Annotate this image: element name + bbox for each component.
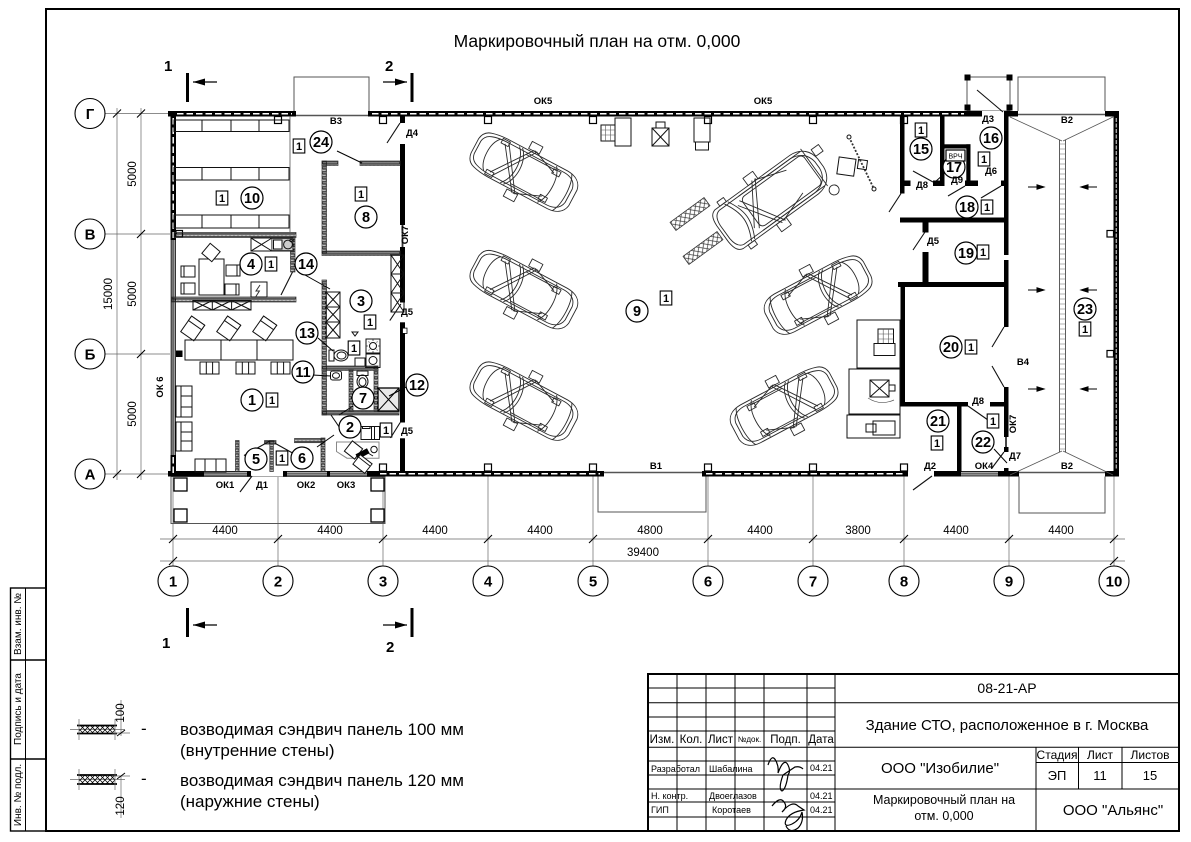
svg-text:Лист: Лист	[1087, 748, 1114, 762]
svg-text:Подпись и дата: Подпись и дата	[13, 673, 24, 745]
svg-text:5000: 5000	[127, 281, 139, 307]
svg-text:1: 1	[162, 635, 170, 652]
svg-text:Д5: Д5	[401, 307, 414, 318]
svg-text:Д4: Д4	[406, 128, 419, 139]
svg-text:ОК5: ОК5	[534, 96, 553, 107]
svg-text:ОК 6: ОК 6	[155, 376, 166, 397]
svg-text:В1: В1	[650, 461, 663, 472]
svg-text:15: 15	[913, 142, 929, 158]
svg-text:В: В	[85, 227, 96, 244]
svg-text:ОК7: ОК7	[1008, 415, 1019, 433]
svg-text:2: 2	[274, 574, 282, 591]
svg-text:3800: 3800	[845, 525, 871, 537]
svg-text:120: 120	[115, 796, 127, 815]
svg-text:11: 11	[295, 365, 310, 381]
svg-text:1: 1	[169, 574, 177, 591]
svg-text:Д9: Д9	[951, 175, 963, 186]
svg-text:ООО "Альянс": ООО "Альянс"	[1063, 802, 1163, 819]
svg-text:Двоеглазов: Двоеглазов	[709, 791, 757, 801]
svg-text:Изм.: Изм.	[650, 734, 675, 746]
svg-text:24: 24	[313, 135, 329, 151]
svg-text:4400: 4400	[527, 525, 553, 537]
svg-text:возводимая сэндвич панель 120: возводимая сэндвич панель 120 мм	[180, 771, 464, 790]
svg-text:Подп.: Подп.	[770, 734, 801, 746]
svg-text:Г: Г	[86, 106, 95, 123]
svg-text:4: 4	[484, 574, 493, 591]
svg-text:7: 7	[809, 574, 817, 591]
svg-text:1: 1	[248, 393, 256, 409]
svg-text:15000: 15000	[103, 278, 115, 310]
svg-text:2: 2	[385, 58, 393, 75]
svg-text:8: 8	[362, 210, 370, 226]
svg-text:19: 19	[958, 246, 974, 262]
svg-text:9: 9	[633, 304, 641, 320]
svg-text:20: 20	[943, 340, 959, 356]
svg-text:№док.: №док.	[738, 735, 761, 744]
svg-text:возводимая сэндвич панель 100: возводимая сэндвич панель 100 мм	[180, 720, 464, 739]
svg-text:4800: 4800	[637, 525, 663, 537]
svg-text:4400: 4400	[422, 525, 448, 537]
svg-text:16: 16	[983, 131, 999, 147]
svg-text:Н. контр.: Н. контр.	[651, 791, 688, 801]
svg-text:7: 7	[359, 391, 367, 407]
svg-text:Д6: Д6	[985, 166, 997, 177]
svg-text:Д7: Д7	[1009, 451, 1021, 462]
svg-text:1: 1	[164, 58, 172, 75]
svg-text:4400: 4400	[747, 525, 773, 537]
svg-text:ОК2: ОК2	[297, 480, 315, 491]
svg-text:6: 6	[704, 574, 712, 591]
svg-text:ОК4: ОК4	[975, 461, 994, 472]
svg-text:Д8: Д8	[916, 180, 928, 191]
svg-text:Д1: Д1	[256, 480, 269, 491]
svg-text:2: 2	[346, 420, 354, 436]
svg-text:4400: 4400	[212, 525, 238, 537]
svg-text:Инв. № подл.: Инв. № подл.	[13, 764, 24, 826]
svg-text:22: 22	[975, 435, 991, 451]
svg-text:6: 6	[298, 451, 306, 467]
svg-text:(наружние стены): (наружние стены)	[180, 792, 320, 811]
svg-text:В2: В2	[1061, 115, 1073, 126]
svg-text:04.21: 04.21	[810, 805, 833, 815]
svg-text:-: -	[141, 769, 147, 788]
svg-text:Б: Б	[85, 347, 96, 364]
svg-text:Лист: Лист	[708, 734, 734, 746]
svg-text:5: 5	[589, 574, 597, 591]
svg-text:8: 8	[900, 574, 908, 591]
svg-text:отм. 0,000: отм. 0,000	[914, 809, 973, 823]
svg-text:ООО "Изобилие": ООО "Изобилие"	[881, 760, 999, 777]
svg-text:4400: 4400	[1048, 525, 1074, 537]
svg-text:Маркировочный план на отм. 0,0: Маркировочный план на отм. 0,000	[454, 31, 741, 51]
svg-text:ОК1: ОК1	[216, 480, 235, 491]
svg-text:4400: 4400	[317, 525, 343, 537]
svg-text:В2: В2	[1061, 461, 1073, 472]
svg-text:Взам. инв. №: Взам. инв. №	[13, 593, 24, 655]
svg-text:Д5: Д5	[401, 426, 414, 437]
svg-text:Здание СТО, расположенное в г.: Здание СТО, расположенное в г. Москва	[866, 717, 1149, 734]
svg-text:ГИП: ГИП	[651, 805, 669, 815]
svg-text:Дата: Дата	[808, 734, 834, 746]
svg-text:18: 18	[959, 200, 975, 216]
svg-text:3: 3	[357, 294, 365, 310]
svg-text:Разработал: Разработал	[651, 764, 700, 774]
svg-text:В3: В3	[330, 116, 342, 127]
svg-text:5: 5	[252, 452, 260, 468]
svg-text:А: А	[85, 467, 96, 484]
svg-text:ВРЧ: ВРЧ	[948, 154, 962, 161]
svg-text:04.21: 04.21	[810, 763, 833, 773]
svg-text:(внутренние стены): (внутренние стены)	[180, 741, 335, 760]
svg-text:10: 10	[1106, 574, 1123, 591]
svg-text:21: 21	[930, 414, 946, 430]
svg-text:Д5: Д5	[927, 236, 940, 247]
svg-text:В4: В4	[1017, 357, 1030, 368]
svg-text:17: 17	[946, 160, 962, 176]
svg-text:10: 10	[244, 191, 260, 207]
svg-text:ОК5: ОК5	[754, 96, 773, 107]
svg-text:Шабалина: Шабалина	[709, 764, 752, 774]
svg-text:5000: 5000	[127, 401, 139, 427]
svg-text:Листов: Листов	[1131, 748, 1170, 762]
svg-text:Кол.: Кол.	[680, 734, 703, 746]
svg-text:11: 11	[1093, 768, 1107, 783]
svg-text:ЭП: ЭП	[1048, 768, 1067, 783]
svg-text:9: 9	[1005, 574, 1013, 591]
svg-text:-: -	[141, 719, 147, 738]
svg-text:08-21-АР: 08-21-АР	[977, 680, 1036, 696]
svg-text:12: 12	[409, 378, 425, 394]
svg-text:Стадия: Стадия	[1037, 748, 1078, 762]
svg-text:4: 4	[247, 257, 255, 273]
svg-text:23: 23	[1077, 302, 1093, 318]
svg-text:Маркировочный план на: Маркировочный план на	[873, 793, 1015, 807]
svg-text:3: 3	[379, 574, 387, 591]
svg-text:ОК3: ОК3	[337, 480, 355, 491]
svg-text:Д8: Д8	[972, 396, 984, 407]
svg-text:14: 14	[298, 257, 314, 273]
svg-text:Коротаев: Коротаев	[712, 805, 751, 815]
svg-text:Д2: Д2	[924, 461, 936, 472]
svg-text:39400: 39400	[627, 547, 659, 559]
svg-text:Д3: Д3	[982, 114, 994, 125]
svg-text:13: 13	[299, 326, 315, 342]
svg-text:100: 100	[115, 703, 127, 722]
svg-text:15: 15	[1143, 768, 1157, 783]
svg-text:ОК7: ОК7	[400, 226, 411, 244]
svg-text:4400: 4400	[943, 525, 969, 537]
svg-text:04.21: 04.21	[810, 791, 833, 801]
svg-text:2: 2	[386, 639, 394, 656]
svg-text:5000: 5000	[127, 161, 139, 187]
